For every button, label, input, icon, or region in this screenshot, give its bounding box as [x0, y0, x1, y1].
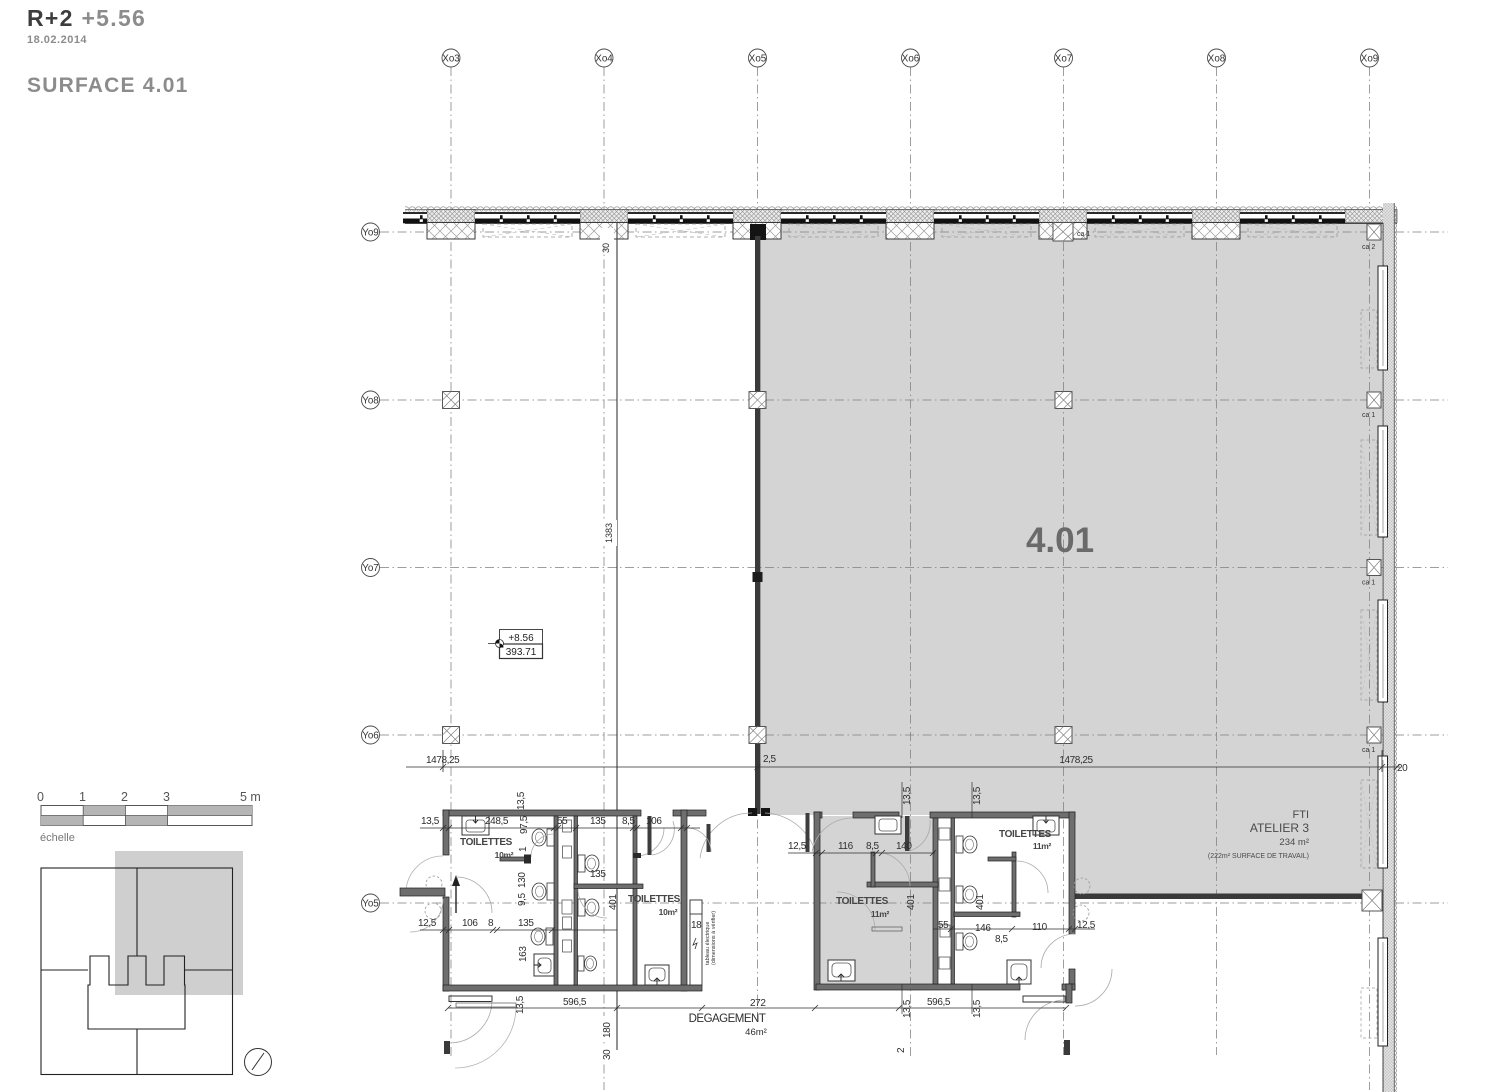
svg-text:8: 8: [488, 918, 494, 929]
svg-text:9,5: 9,5: [517, 892, 528, 906]
svg-text:55: 55: [557, 816, 568, 827]
svg-text:46m²: 46m²: [745, 1027, 767, 1038]
svg-text:12,5: 12,5: [788, 841, 807, 852]
svg-text:18.02.2014: 18.02.2014: [27, 34, 87, 46]
svg-text:11m²: 11m²: [1033, 841, 1052, 851]
svg-text:5 m: 5 m: [240, 790, 261, 804]
svg-text:596,5: 596,5: [927, 997, 951, 1008]
svg-text:Xo8: Xo8: [1208, 54, 1226, 65]
svg-text:ca 1: ca 1: [1077, 231, 1090, 238]
svg-text:13,5: 13,5: [421, 816, 440, 827]
svg-text:8,5: 8,5: [995, 934, 1009, 945]
svg-text:13,5: 13,5: [516, 791, 527, 810]
svg-text:10m²: 10m²: [659, 907, 678, 917]
svg-text:596,5: 596,5: [563, 997, 587, 1008]
svg-text:248,5: 248,5: [485, 816, 509, 827]
svg-text:55: 55: [938, 920, 949, 931]
svg-text:8,5: 8,5: [866, 841, 880, 852]
svg-text:FTI: FTI: [1293, 809, 1310, 821]
svg-text:11m²: 11m²: [871, 909, 890, 919]
svg-text:20: 20: [1397, 763, 1408, 774]
svg-text:Xo4: Xo4: [595, 54, 613, 65]
svg-text:ca 1: ca 1: [1362, 412, 1375, 419]
svg-text:272: 272: [750, 998, 766, 1009]
svg-text:SURFACE 4.01: SURFACE 4.01: [27, 74, 188, 97]
svg-text:2: 2: [896, 1047, 907, 1053]
svg-text:Xo9: Xo9: [1361, 54, 1378, 65]
svg-text:TOILETTES: TOILETTES: [460, 837, 513, 848]
svg-text:135: 135: [590, 869, 606, 880]
svg-text:4.01: 4.01: [1026, 521, 1094, 560]
svg-text:116: 116: [838, 841, 854, 852]
svg-text:401: 401: [906, 894, 917, 910]
svg-text:ATELIER 3: ATELIER 3: [1250, 821, 1309, 835]
svg-text:30: 30: [601, 243, 611, 253]
svg-text:234 m²: 234 m²: [1279, 837, 1309, 848]
svg-text:1478,25: 1478,25: [1059, 755, 1093, 766]
svg-text:échelle: échelle: [40, 832, 75, 844]
svg-text:13,5: 13,5: [972, 786, 983, 805]
svg-text:1: 1: [79, 790, 86, 804]
svg-text:ca 1: ca 1: [1362, 580, 1375, 587]
svg-text:180: 180: [602, 1022, 613, 1038]
svg-text:10m²: 10m²: [495, 850, 514, 860]
svg-text:2: 2: [121, 790, 128, 804]
svg-text:Xo5: Xo5: [749, 54, 767, 65]
svg-text:Yo9: Yo9: [362, 228, 379, 239]
svg-text:Yo7: Yo7: [362, 563, 379, 574]
svg-text:135: 135: [590, 816, 606, 827]
svg-text:13,5: 13,5: [972, 999, 983, 1018]
svg-text:130: 130: [517, 872, 528, 888]
svg-text:3: 3: [163, 790, 170, 804]
svg-text:135: 135: [518, 918, 534, 929]
svg-text:1: 1: [518, 846, 529, 852]
svg-text:30: 30: [602, 1049, 613, 1060]
svg-text:ca 2: ca 2: [1362, 244, 1375, 251]
svg-text:1383: 1383: [604, 523, 614, 543]
svg-text:Xo6: Xo6: [902, 54, 920, 65]
svg-text:97,5: 97,5: [519, 815, 530, 834]
svg-text:Xo7: Xo7: [1055, 54, 1072, 65]
svg-text:12,5: 12,5: [418, 918, 437, 929]
svg-text:TOILETTES: TOILETTES: [999, 829, 1052, 840]
svg-text:R+2 +5.56: R+2 +5.56: [27, 5, 146, 31]
svg-text:18: 18: [691, 920, 702, 931]
svg-text:TOILETTES: TOILETTES: [836, 896, 889, 907]
svg-text:+8.56: +8.56: [508, 633, 534, 644]
svg-text:8,5: 8,5: [622, 816, 636, 827]
svg-text:106: 106: [462, 918, 478, 929]
svg-text:TOILETTES: TOILETTES: [628, 894, 681, 905]
svg-text:110: 110: [1032, 922, 1048, 933]
svg-text:Xo3: Xo3: [442, 54, 460, 65]
svg-text:Yo5: Yo5: [362, 899, 379, 910]
svg-text:106: 106: [646, 816, 662, 827]
svg-text:(dimensions à vérifier): (dimensions à vérifier): [711, 911, 717, 965]
svg-text:1478,25: 1478,25: [426, 755, 460, 766]
svg-text:163: 163: [518, 946, 529, 962]
svg-text:13,5: 13,5: [902, 786, 913, 805]
svg-text:393.71: 393.71: [506, 647, 537, 658]
svg-text:(222m² SURFACE DE TRAVAIL): (222m² SURFACE DE TRAVAIL): [1208, 853, 1309, 860]
svg-text:13,5: 13,5: [902, 999, 913, 1018]
svg-text:12,5: 12,5: [1077, 920, 1096, 931]
svg-text:2,5: 2,5: [763, 754, 777, 765]
svg-text:DEGAGEMENT: DEGAGEMENT: [689, 1013, 766, 1025]
svg-text:ca 1: ca 1: [1362, 747, 1375, 754]
svg-text:401: 401: [608, 894, 619, 910]
svg-text:Yo6: Yo6: [362, 731, 379, 742]
svg-text:401: 401: [975, 894, 986, 910]
svg-text:146: 146: [975, 923, 991, 934]
svg-text:0: 0: [37, 790, 44, 804]
svg-text:140: 140: [896, 841, 912, 852]
svg-text:Yo8: Yo8: [362, 396, 379, 407]
svg-text:13,5: 13,5: [515, 995, 526, 1014]
